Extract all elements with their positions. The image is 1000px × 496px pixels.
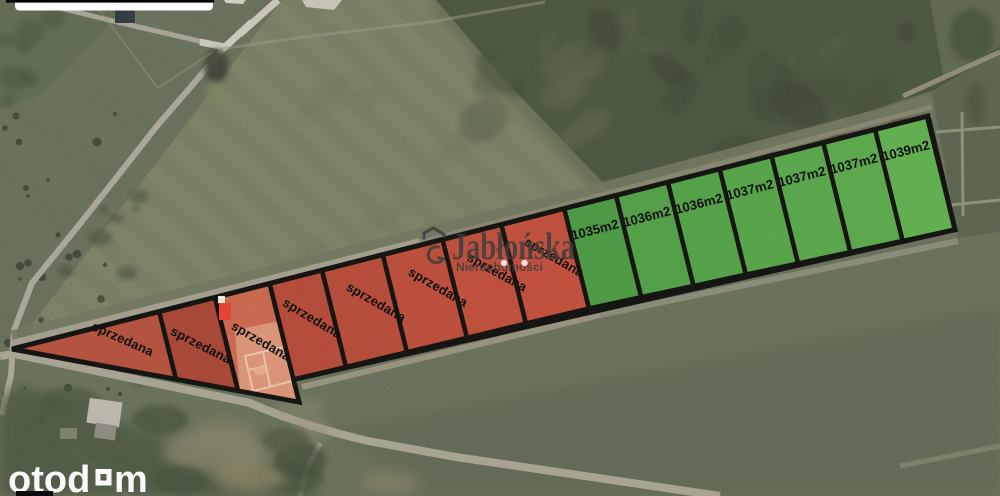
svg-text:Nieruchomości: Nieruchomości <box>456 262 543 274</box>
svg-text:m: m <box>114 459 148 496</box>
svg-text:otod: otod <box>8 459 90 496</box>
